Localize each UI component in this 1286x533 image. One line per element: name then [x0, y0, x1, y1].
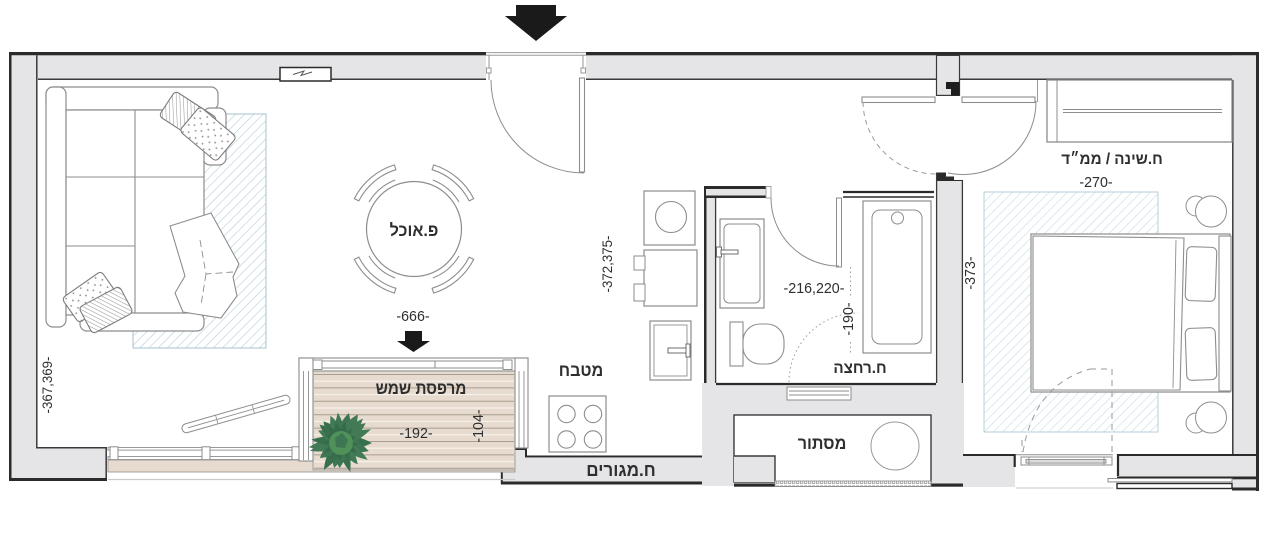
- svg-text:ח.מגורים: ח.מגורים: [586, 460, 655, 481]
- svg-text:-666-: -666-: [396, 309, 429, 325]
- svg-text:-372,375-: -372,375-: [600, 236, 615, 293]
- svg-text:-216,220-: -216,220-: [784, 281, 845, 297]
- svg-text:-367,369-: -367,369-: [40, 357, 55, 414]
- svg-text:-192-: -192-: [399, 426, 432, 442]
- svg-text:מרפסת שמש: מרפסת שמש: [376, 379, 467, 398]
- svg-text:מטבח: מטבח: [559, 361, 603, 380]
- svg-text:מסתור: מסתור: [798, 434, 847, 453]
- svg-text:-104-: -104-: [471, 409, 487, 442]
- svg-text:-373-: -373-: [963, 256, 979, 289]
- svg-text:-190-: -190-: [841, 302, 857, 335]
- svg-text:ח.רחצה: ח.רחצה: [833, 360, 886, 377]
- svg-text:-270-: -270-: [1079, 175, 1112, 191]
- svg-text:ח.שינה / ממ״ד: ח.שינה / ממ״ד: [1061, 151, 1163, 168]
- svg-text:פ.אוכל: פ.אוכל: [390, 221, 439, 240]
